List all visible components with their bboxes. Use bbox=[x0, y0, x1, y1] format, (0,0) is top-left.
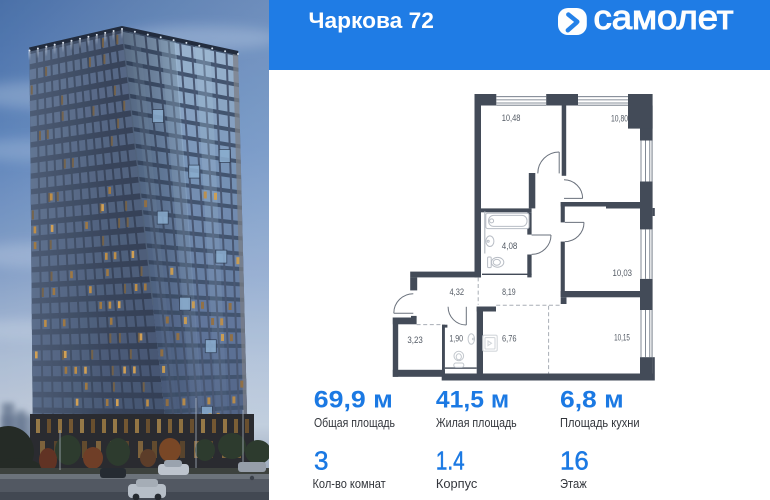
svg-text:Кол-во комнат: Кол-во комнат bbox=[313, 476, 386, 491]
svg-text:10,80: 10,80 bbox=[611, 113, 628, 123]
svg-text:69,9 м: 69,9 м bbox=[314, 387, 393, 414]
svg-text:8,19: 8,19 bbox=[502, 287, 516, 297]
svg-text:Чаркова 72: Чаркова 72 bbox=[309, 8, 434, 33]
svg-text:Площадь кухни: Площадь кухни bbox=[560, 415, 640, 430]
svg-text:41,5 м: 41,5 м bbox=[436, 387, 509, 414]
svg-text:Общая площадь: Общая площадь bbox=[314, 415, 395, 430]
svg-text:10,48: 10,48 bbox=[502, 113, 521, 123]
svg-text:3,23: 3,23 bbox=[407, 335, 422, 345]
svg-text:10,03: 10,03 bbox=[613, 268, 633, 278]
svg-text:1.4: 1.4 bbox=[436, 446, 465, 476]
svg-text:16: 16 bbox=[560, 446, 589, 476]
svg-text:самолет: самолет bbox=[594, 0, 734, 37]
svg-text:3: 3 bbox=[314, 446, 328, 476]
svg-text:4,32: 4,32 bbox=[450, 287, 465, 297]
svg-text:4,08: 4,08 bbox=[502, 241, 518, 251]
svg-text:Этаж: Этаж bbox=[560, 476, 587, 491]
svg-text:Жилая площадь: Жилая площадь bbox=[436, 415, 517, 430]
svg-text:Корпус: Корпус bbox=[436, 476, 478, 491]
svg-text:6,8 м: 6,8 м bbox=[560, 387, 624, 414]
svg-text:1,90: 1,90 bbox=[449, 333, 463, 343]
svg-text:6,76: 6,76 bbox=[502, 333, 517, 343]
svg-text:10,15: 10,15 bbox=[614, 332, 630, 342]
